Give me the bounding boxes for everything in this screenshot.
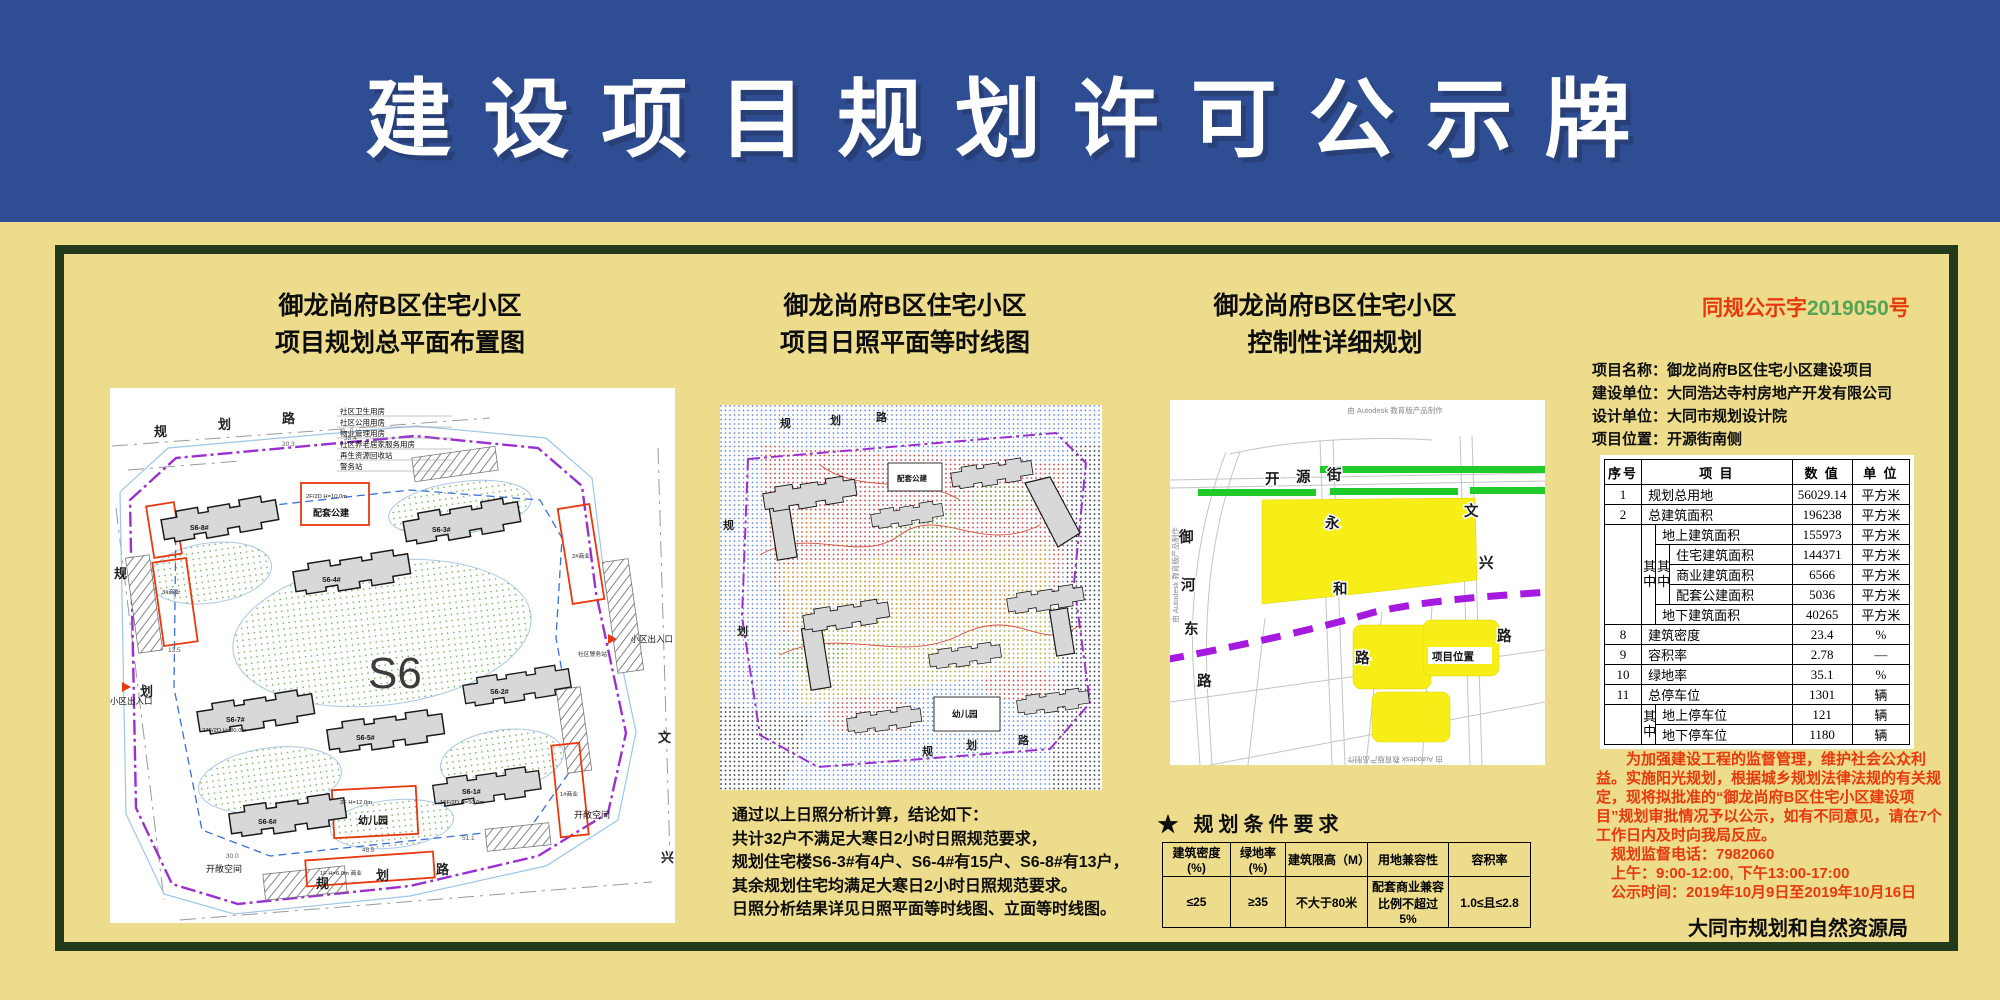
info-line-builder: 建设单位：大同浩达寺村房地产开发有限公司	[1592, 382, 1892, 405]
doc-number-digits: 2019050	[1807, 297, 1889, 320]
cell-value: 1180	[1792, 725, 1852, 745]
svg-text:开敞空间: 开敞空间	[206, 863, 242, 874]
notice-board: 御龙尚府B区住宅小区 项目规划总平面布置图 御龙尚府B区住宅小区 项目日照平面等…	[0, 222, 2000, 1000]
svg-text:20.3: 20.3	[282, 441, 295, 448]
cell-unit: 平方米	[1852, 505, 1909, 525]
building-annotation: 16F/2D H=50.0m	[440, 800, 484, 806]
shop-label: 1#商业	[560, 790, 578, 798]
indicator-table-wrap: 序号 项 目 数 值 单 位 1 规划总用地 56029.14 平方米 2 总建…	[1600, 455, 1914, 749]
cell-item: 地下停车位	[1656, 725, 1792, 745]
svg-text:文: 文	[1464, 502, 1479, 520]
svg-text:路: 路	[436, 862, 450, 877]
entrance-label: 小区出入口	[630, 634, 673, 644]
public-notice-text: 为加强建设工程的监督管理，维护社会公众利益。实施阳光规划，根据城乡规划法律法规的…	[1596, 750, 1946, 902]
cell-unit: 平方米	[1852, 605, 1909, 625]
building-label: S6-8#	[190, 525, 209, 532]
svg-text:规: 规	[723, 518, 734, 532]
location-map-drawing: 项目位置 开 源 街 永 和 路 文 兴 路 御 河 东 路 由 Autodes…	[1170, 400, 1545, 765]
indicator-table: 序号 项 目 数 值 单 位 1 规划总用地 56029.14 平方米 2 总建…	[1604, 459, 1910, 745]
svg-text:35.4: 35.4	[344, 435, 357, 442]
col-header-item: 项 目	[1642, 460, 1792, 485]
cell-value: 23.4	[1792, 625, 1852, 645]
kindergarten-label: 幼儿园	[358, 814, 388, 827]
svg-text:文: 文	[658, 730, 672, 745]
cell-unit: 平方米	[1852, 545, 1909, 565]
panel1-title-line2: 项目规划总平面布置图	[150, 325, 650, 362]
cell-value: 1301	[1792, 685, 1852, 705]
svg-text:路: 路	[282, 411, 296, 426]
cell-item: 建筑密度	[1642, 625, 1792, 645]
info-line-designer: 设计单位：大同市规划设计院	[1592, 405, 1892, 428]
table-row: 其中 地上停车位 121 辆	[1605, 705, 1910, 725]
building-label: S6-5#	[356, 735, 375, 742]
notice-period: 公示时间：2019年10月9日至2019年10月16日	[1596, 883, 1946, 902]
cell-no: 1	[1605, 485, 1642, 505]
cell-no	[1605, 525, 1642, 625]
cell-value: 40265	[1792, 605, 1852, 625]
cell-item: 绿地率	[1642, 665, 1792, 685]
building-label: S6-4#	[322, 577, 341, 584]
svg-text:由 Autodesk 教育版产品制作: 由 Autodesk 教育版产品制作	[1170, 527, 1180, 623]
svg-text:30.0: 30.0	[226, 853, 239, 860]
svg-text:13.5: 13.5	[168, 647, 181, 654]
cond-header: 绿地率(%)	[1231, 843, 1286, 877]
cell-group: 其中	[1656, 545, 1670, 605]
table-row: 11 总停车位 1301 辆	[1605, 685, 1910, 705]
svg-text:48.6: 48.6	[362, 847, 375, 854]
svg-text:东: 东	[1184, 620, 1199, 638]
planning-conditions-table: 建筑密度(%) 绿地率(%) 建筑限高（M） 用地兼容性 容积率 ≤25 ≥35…	[1162, 842, 1531, 928]
cell-value: 155973	[1792, 525, 1852, 545]
table-row: 2 总建筑面积 196238 平方米	[1605, 505, 1910, 525]
site-code-label: S6	[368, 649, 422, 698]
info-line-location: 项目位置：开源街南侧	[1592, 428, 1892, 451]
svg-text:由 Autodesk 教育版产品制作: 由 Autodesk 教育版产品制作	[1347, 405, 1443, 415]
cell-no: 2	[1605, 505, 1642, 525]
svg-text:开: 开	[1265, 471, 1280, 488]
svg-text:永: 永	[1324, 514, 1340, 532]
facility-item: 社区卫生用房	[340, 406, 385, 416]
document-number: 同规公示字2019050号	[1702, 292, 1937, 322]
cell-item: 商业建筑面积	[1670, 565, 1792, 585]
panel2-title-line1: 御龙尚府B区住宅小区	[655, 288, 1155, 325]
cell-unit: 平方米	[1852, 525, 1909, 545]
cell-unit: 平方米	[1852, 565, 1909, 585]
svg-text:路: 路	[1497, 627, 1512, 645]
svg-text:开敞空间: 开敞空间	[574, 809, 610, 820]
panel2-title-line2: 项目日照平面等时线图	[655, 325, 1155, 362]
cond-value: 配套商业兼容比例不超过5%	[1368, 877, 1449, 928]
cond-value: ≥35	[1231, 877, 1286, 928]
cell-no: 11	[1605, 685, 1642, 705]
issuing-authority: 大同市规划和自然资源局	[1688, 912, 1940, 941]
svg-text:和: 和	[1333, 581, 1348, 598]
table-row: 9 容积率 2.78 —	[1605, 645, 1910, 665]
notice-hours: 上午：9:00-12:00, 下午13:00-17:00	[1596, 864, 1946, 883]
cell-value: 5036	[1792, 585, 1852, 605]
svg-text:划: 划	[737, 624, 748, 638]
facility-item: 警务站	[340, 461, 363, 471]
building-label: S6-2#	[490, 689, 509, 696]
cell-value: 56029.14	[1792, 485, 1852, 505]
cell-unit: —	[1852, 645, 1909, 665]
conclusion-line: 共计32户不满足大寒日2小时日照规范要求，	[732, 828, 1142, 852]
svg-text:路: 路	[1018, 733, 1030, 747]
svg-text:51.1: 51.1	[462, 835, 475, 842]
cell-unit: 平方米	[1852, 485, 1909, 505]
shop-label: 2#商业	[572, 552, 590, 560]
cell-no: 10	[1605, 665, 1642, 685]
svg-text:规: 规	[922, 744, 933, 758]
shop-label: 3#商业	[162, 588, 180, 596]
entrance-label: 小区出入口	[110, 696, 153, 706]
svg-text:划: 划	[830, 413, 841, 427]
kindergarten-label: 幼儿园	[952, 709, 978, 719]
svg-text:兴: 兴	[1479, 555, 1494, 572]
cell-value: 144371	[1792, 545, 1852, 565]
police-station-label: 社区警务站	[578, 650, 607, 658]
table-row: 10 绿地率 35.1 %	[1605, 665, 1910, 685]
svg-text:路: 路	[1197, 672, 1212, 690]
svg-text:河: 河	[1181, 576, 1196, 594]
cond-value: 1.0≤且≤2.8	[1449, 877, 1531, 928]
svg-text:街: 街	[1326, 466, 1342, 484]
svg-text:划: 划	[376, 868, 389, 883]
doc-number-suffix: 号	[1889, 297, 1910, 320]
svg-text:划: 划	[218, 417, 231, 432]
facility-item: 再生资源回收站	[340, 450, 393, 460]
project-location-callout: 项目位置	[1428, 647, 1492, 664]
cell-unit: 辆	[1852, 705, 1909, 725]
cond-header: 建筑限高（M）	[1286, 843, 1368, 877]
cell-unit: %	[1852, 625, 1909, 645]
panel2-title: 御龙尚府B区住宅小区 项目日照平面等时线图	[655, 288, 1155, 362]
cell-no: 8	[1605, 625, 1642, 645]
cell-item: 总建筑面积	[1642, 505, 1792, 525]
cell-item: 总停车位	[1642, 685, 1792, 705]
building-label: S6-1#	[462, 789, 481, 796]
conclusion-line: 通过以上日照分析计算，结论如下：	[732, 804, 1142, 828]
sunshine-conclusion: 通过以上日照分析计算，结论如下： 共计32户不满足大寒日2小时日照规范要求， 规…	[732, 804, 1142, 922]
cell-item: 地下建筑面积	[1656, 605, 1792, 625]
cell-item: 住宅建筑面积	[1670, 545, 1792, 565]
cell-item: 容积率	[1642, 645, 1792, 665]
building-label: S6-3#	[432, 527, 451, 534]
cell-item: 地上停车位	[1656, 705, 1792, 725]
cell-unit: 辆	[1852, 725, 1909, 745]
building-annotation: 27F/2D H=80.0m	[202, 728, 246, 734]
cell-group: 其中	[1642, 525, 1656, 625]
cond-value: 不大于80米	[1286, 877, 1368, 928]
cond-value: ≤25	[1163, 877, 1231, 928]
panel3-title-line1: 御龙尚府B区住宅小区	[1085, 288, 1585, 325]
cell-unit: %	[1852, 665, 1909, 685]
facility-item: 社区公用用房	[340, 417, 385, 427]
col-header-unit: 单 位	[1852, 460, 1909, 485]
table-row: 其中 地上建筑面积 155973 平方米	[1605, 525, 1910, 545]
public-building-label: 配套公建	[897, 473, 927, 483]
conclusion-line: 日照分析结果详见日照平面等时线图、立面等时线图。	[732, 898, 1142, 922]
cond-header: 建筑密度(%)	[1163, 843, 1231, 877]
conclusion-line: 其余规划住宅均满足大寒日2小时日照规范要求。	[732, 875, 1142, 899]
svg-text:兴: 兴	[661, 850, 674, 865]
svg-text:御: 御	[1178, 528, 1194, 546]
cell-group: 其中	[1642, 705, 1656, 745]
table-row: 8 建筑密度 23.4 %	[1605, 625, 1910, 645]
col-header-seq: 序号	[1605, 460, 1642, 485]
page-title: 建 设 项 目 规 划 许 可 公 示 牌	[366, 49, 1635, 174]
col-header-value: 数 值	[1792, 460, 1852, 485]
doc-number-prefix: 同规公示字	[1702, 297, 1807, 320]
cell-no: 9	[1605, 645, 1642, 665]
building-label: S6-6#	[258, 819, 277, 826]
svg-text:规: 规	[316, 876, 329, 891]
planning-conditions-heading: ★ 规划条件要求	[1158, 808, 1344, 837]
cell-unit: 平方米	[1852, 585, 1909, 605]
svg-text:规: 规	[780, 416, 791, 430]
svg-text:规: 规	[114, 566, 127, 581]
svg-text:由 Autodesk 教育版产品制作: 由 Autodesk 教育版产品制作	[1347, 755, 1443, 765]
panel3-title: 御龙尚府B区住宅小区 控制性详细规划	[1085, 288, 1585, 362]
panel1-title-line1: 御龙尚府B区住宅小区	[150, 288, 650, 325]
panel1-title: 御龙尚府B区住宅小区 项目规划总平面布置图	[150, 288, 650, 362]
project-location-label: 项目位置	[1432, 650, 1474, 663]
site-plan-drawing: S6-8# S6-3# S6-4# S6-7# S6-2# S6-5# S6-6…	[110, 388, 675, 923]
panel3-title-line2: 控制性详细规划	[1085, 325, 1585, 362]
cond-header: 用地兼容性	[1368, 843, 1449, 877]
notice-phone: 规划监督电话：7982060	[1596, 845, 1946, 864]
cell-no	[1605, 705, 1642, 745]
banner-header: 建 设 项 目 规 划 许 可 公 示 牌	[0, 0, 2000, 222]
cell-value: 6566	[1792, 565, 1852, 585]
table-row: 1 规划总用地 56029.14 平方米	[1605, 485, 1910, 505]
svg-text:路: 路	[876, 410, 888, 424]
svg-text:源: 源	[1296, 468, 1311, 486]
svg-text:规: 规	[154, 424, 167, 439]
svg-text:路: 路	[1355, 649, 1370, 667]
sunshine-isochrone-drawing: 配套公建 幼儿园 规 划 路 规 划 路 规 划	[720, 405, 1102, 790]
cell-value: 121	[1792, 705, 1852, 725]
cell-item: 规划总用地	[1642, 485, 1792, 505]
public-building-annotation: 2F/2D H=10.0m	[306, 494, 347, 500]
conclusion-line: 规划住宅楼S6-3#有4户、S6-4#有15户、S6-8#有13户，	[732, 851, 1142, 875]
cell-value: 35.1	[1792, 665, 1852, 685]
cell-item: 配套公建面积	[1670, 585, 1792, 605]
cell-unit: 辆	[1852, 685, 1909, 705]
svg-text:划: 划	[966, 738, 977, 752]
kindergarten-annotation: 3F H=12.0m	[340, 800, 372, 806]
project-info: 项目名称：御龙尚府B区住宅小区建设项目 建设单位：大同浩达寺村房地产开发有限公司…	[1592, 359, 1892, 451]
cond-header: 容积率	[1449, 843, 1531, 877]
notice-paragraph: 为加强建设工程的监督管理，维护社会公众利益。实施阳光规划，根据城乡规划法律法规的…	[1596, 750, 1946, 845]
cell-value: 196238	[1792, 505, 1852, 525]
info-line-project-name: 项目名称：御龙尚府B区住宅小区建设项目	[1592, 359, 1892, 382]
cell-value: 2.78	[1792, 645, 1852, 665]
public-building-label: 配套公建	[313, 507, 350, 518]
building-label: S6-7#	[226, 717, 245, 724]
cell-item: 地上建筑面积	[1656, 525, 1792, 545]
